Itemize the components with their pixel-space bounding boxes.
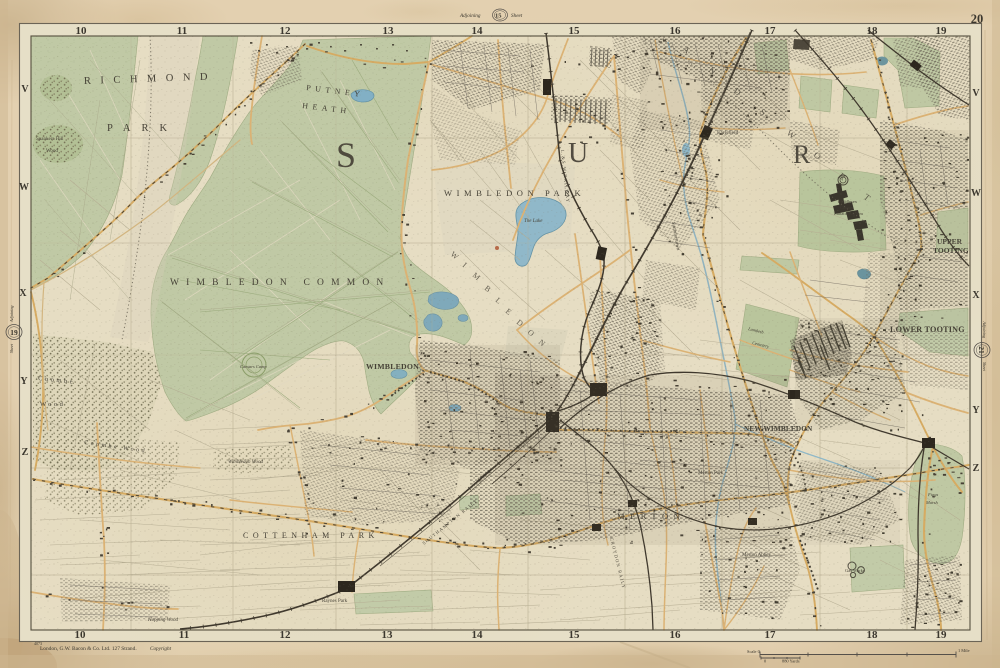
svg-text:Y: Y xyxy=(972,405,980,416)
svg-text:W: W xyxy=(971,188,981,199)
svg-text:Z: Z xyxy=(22,447,29,458)
svg-text:14: 14 xyxy=(472,25,484,37)
svg-text:Adjoining: Adjoining xyxy=(459,13,481,19)
svg-text:W: W xyxy=(19,182,29,193)
svg-text:Adjoining: Adjoining xyxy=(9,305,14,323)
svg-text:X: X xyxy=(19,288,27,299)
svg-text:Sheet: Sheet xyxy=(511,13,523,19)
svg-text:19: 19 xyxy=(936,25,948,37)
svg-text:13: 13 xyxy=(382,629,394,641)
svg-text:Sheet: Sheet xyxy=(982,362,987,372)
svg-text:17: 17 xyxy=(765,25,777,37)
svg-text:12: 12 xyxy=(280,629,292,641)
svg-text:V: V xyxy=(972,88,980,99)
svg-text:11: 11 xyxy=(177,25,187,37)
svg-text:10: 10 xyxy=(75,629,87,641)
svg-text:10: 10 xyxy=(76,25,88,37)
svg-text:15: 15 xyxy=(569,629,581,641)
svg-text:14: 14 xyxy=(472,629,484,641)
svg-text:19: 19 xyxy=(936,629,948,641)
svg-text:4073: 4073 xyxy=(34,641,42,646)
svg-text:16: 16 xyxy=(670,629,682,641)
svg-text:1 Mile: 1 Mile xyxy=(958,648,970,653)
svg-text:London, G.W. Bacon & Co. Ltd.: London, G.W. Bacon & Co. Ltd. 127 Strand… xyxy=(40,646,137,652)
svg-text:15: 15 xyxy=(569,25,581,37)
svg-text:Z: Z xyxy=(973,463,980,474)
svg-text:Copyright: Copyright xyxy=(150,646,172,652)
svg-text:15: 15 xyxy=(495,13,502,20)
svg-text:19: 19 xyxy=(10,328,18,337)
svg-text:Adjoining: Adjoining xyxy=(982,320,987,338)
svg-text:X: X xyxy=(972,290,980,301)
svg-text:18: 18 xyxy=(867,629,879,641)
svg-text:18: 18 xyxy=(867,25,879,37)
svg-text:11: 11 xyxy=(179,629,189,641)
svg-text:880 Yards: 880 Yards xyxy=(782,659,800,664)
svg-text:17: 17 xyxy=(765,629,777,641)
svg-text:21: 21 xyxy=(977,346,986,354)
svg-text:Scale 0: Scale 0 xyxy=(747,649,761,654)
svg-text:16: 16 xyxy=(670,25,682,37)
svg-text:V: V xyxy=(21,84,29,95)
svg-text:12: 12 xyxy=(280,25,292,37)
svg-text:Sheet: Sheet xyxy=(9,343,14,353)
svg-text:20: 20 xyxy=(971,12,984,26)
svg-text:Y: Y xyxy=(20,376,28,387)
svg-text:13: 13 xyxy=(383,25,395,37)
